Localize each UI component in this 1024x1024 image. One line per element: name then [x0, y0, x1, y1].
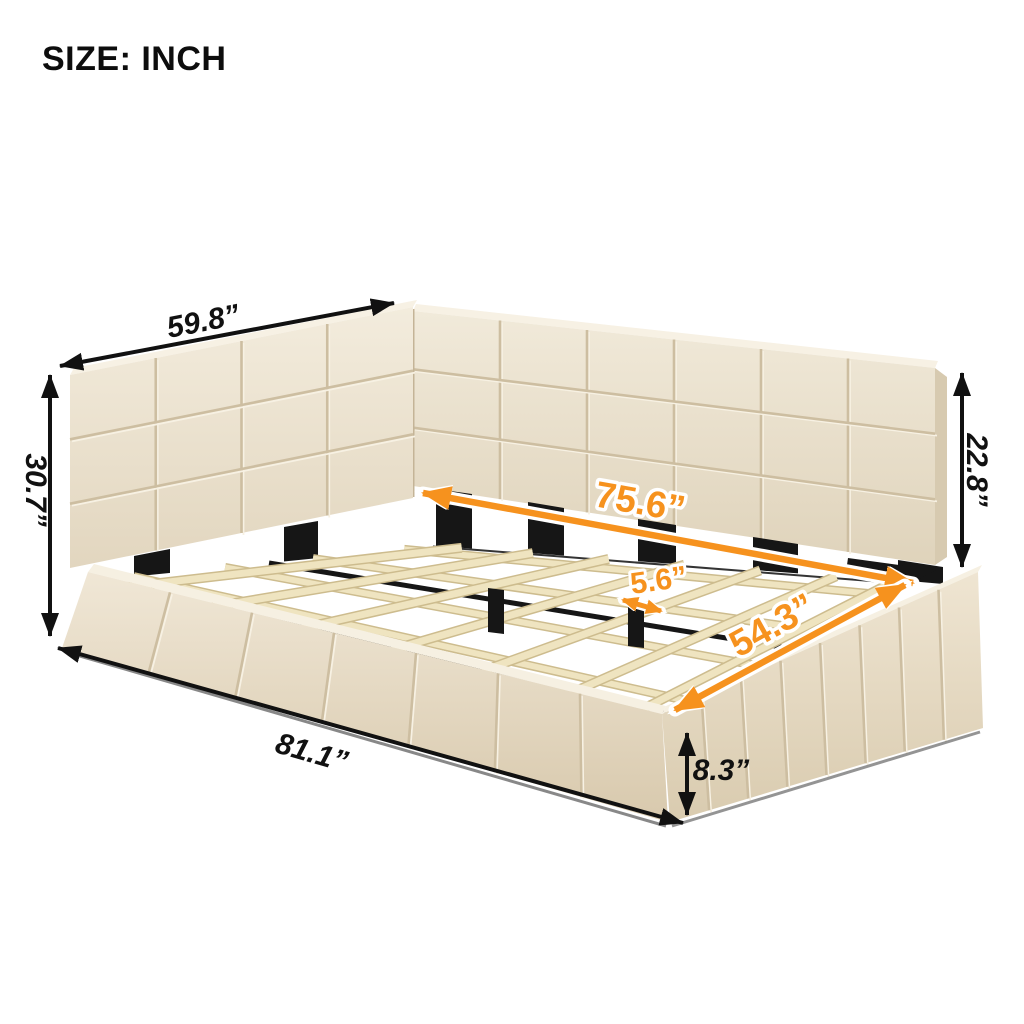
size-unit-title: SIZE: INCH [42, 40, 226, 78]
dimension-overall-height: 30.7” [19, 375, 52, 636]
base-height-label: 8.3” [693, 754, 750, 787]
overall-height-label: 30.7” [19, 453, 52, 526]
bed-dimension-figure: SIZE: INCH 59.8” 30.7” 22.8” 75.6” 5.6” … [0, 0, 1024, 1024]
product-dimension-diagram: SIZE: INCH 59.8” 30.7” 22.8” 75.6” 5.6” … [0, 0, 1024, 1024]
overall-length-label: 81.1” [272, 727, 352, 779]
backrest-height-label: 22.8” [960, 432, 993, 506]
dimension-backrest-height: 22.8” [960, 373, 993, 567]
headboard-side-panel [70, 300, 417, 568]
